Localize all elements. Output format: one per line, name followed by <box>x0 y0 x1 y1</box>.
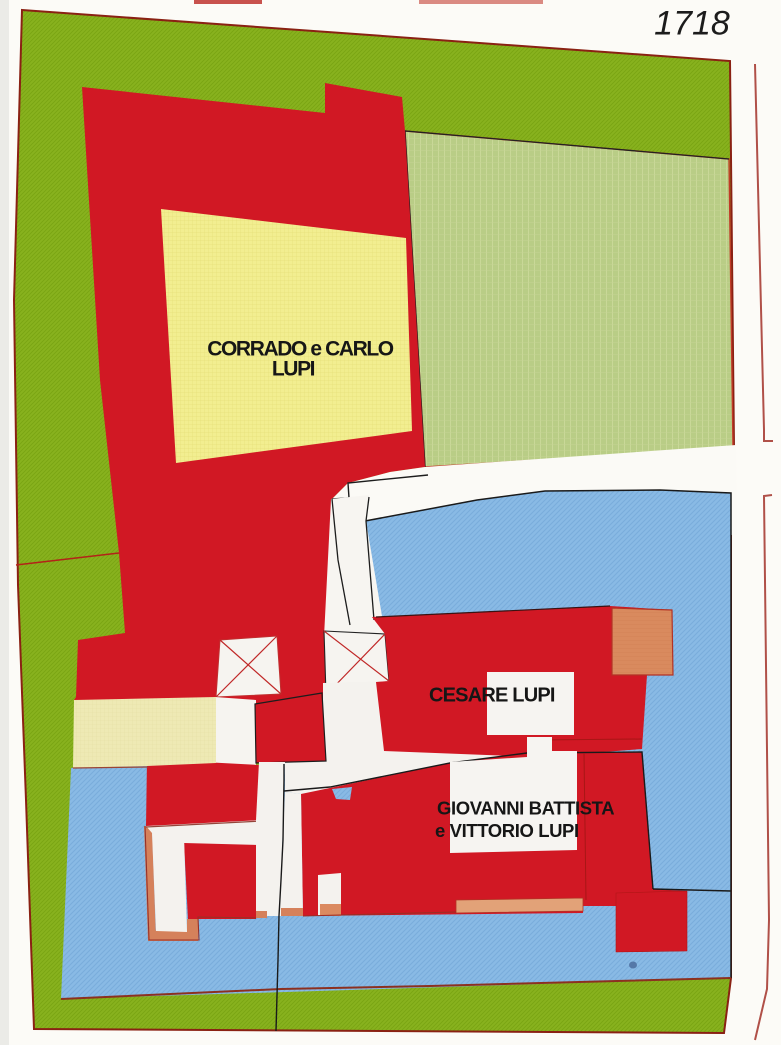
svg-text:e VITTORIO LUPI: e VITTORIO LUPI <box>435 820 579 841</box>
svg-text:1718: 1718 <box>654 5 730 43</box>
svg-text:CESARE LUPI: CESARE LUPI <box>429 685 555 707</box>
svg-text:GIOVANNI BATTISTA: GIOVANNI BATTISTA <box>437 798 614 819</box>
svg-text:LUPI: LUPI <box>272 358 315 381</box>
